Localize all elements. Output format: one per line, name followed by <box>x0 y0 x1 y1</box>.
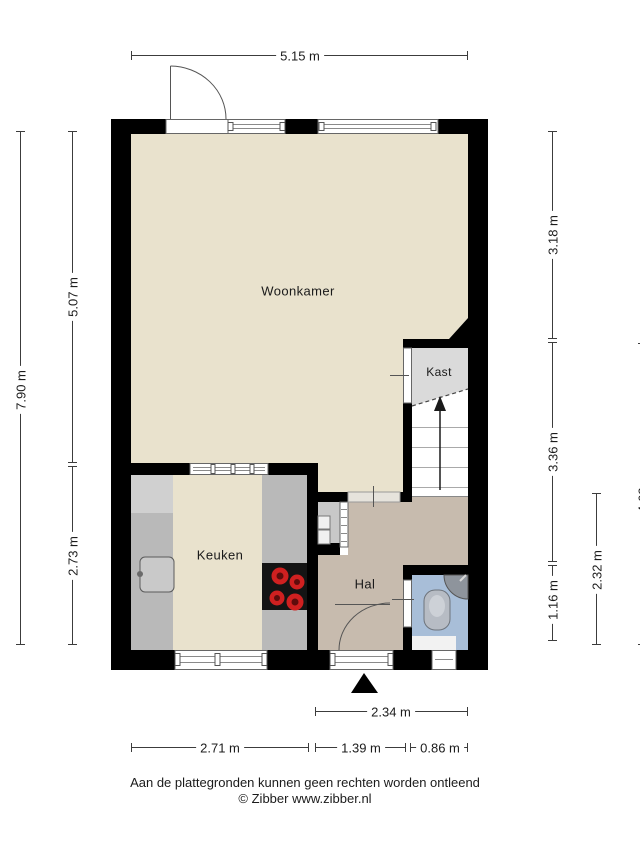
dim-label-right-upper: 3.18 m <box>546 211 561 259</box>
dim-label-right-hall: 2.32 m <box>590 546 605 594</box>
wall-toilet-left <box>403 627 412 650</box>
meter-closet-vent-window <box>340 502 348 547</box>
wall-stairwell-left <box>403 403 412 497</box>
footer-credit: © Zibber www.zibber.nl <box>238 791 371 806</box>
kitchen-counter-right <box>262 475 307 650</box>
top-window-left <box>228 120 285 134</box>
interior-window-kitchen <box>190 464 268 475</box>
hal-floor <box>403 497 468 565</box>
floorplan-page: Woonkamer Kast Keuken Hal 5.15 m 7.90 m … <box>0 0 640 853</box>
dim-label-right-middle: 3.36 m <box>546 428 561 476</box>
wall-meter-closet-top <box>318 492 348 502</box>
dim-label-top-width: 5.15 m <box>276 49 324 64</box>
toilet-recess <box>412 636 456 650</box>
dim-label-bottom-kitchen: 2.71 m <box>196 741 244 756</box>
meter-closet-fixtures <box>318 516 330 544</box>
footer-disclaimer: Aan de plattegronden kunnen geen rechten… <box>130 775 480 790</box>
wall-kitchen-top <box>131 463 190 475</box>
entrance-arrow-icon <box>351 673 378 693</box>
dim-label-left-lower: 2.73 m <box>66 532 81 580</box>
kitchen-window <box>175 651 267 670</box>
dim-label-right-lower: 1.16 m <box>546 576 561 624</box>
wall-kitchen-right <box>307 463 318 650</box>
room-label-kast: Kast <box>426 365 452 379</box>
top-window-right <box>318 120 438 134</box>
wall-toilet-top <box>403 565 468 575</box>
sink-icon <box>140 557 174 592</box>
wall-toilet-left <box>403 565 412 580</box>
floorplan-drawing <box>0 0 640 853</box>
dim-label-left-total: 7.90 m <box>14 366 29 414</box>
toilet-door-opening <box>404 580 412 627</box>
dim-label-left-upper: 5.07 m <box>66 273 81 321</box>
kitchen-counter-left-top <box>131 475 173 513</box>
top-door-arc <box>171 66 227 119</box>
room-label-hal: Hal <box>355 577 376 592</box>
room-label-woonkamer: Woonkamer <box>261 284 334 299</box>
dim-label-bottom-hall-width: 2.34 m <box>367 705 415 720</box>
dim-label-bottom-toilet: 0.86 m <box>416 741 464 756</box>
wall-left <box>111 119 131 670</box>
wall-right <box>468 119 488 670</box>
wall-meter-closet-bottom <box>307 543 340 555</box>
sink-faucet-icon <box>137 571 143 577</box>
dim-label-bottom-door: 1.39 m <box>337 741 385 756</box>
appliance-icon <box>318 530 330 544</box>
front-door-opening <box>330 651 393 670</box>
wall-bottom <box>111 650 488 670</box>
appliance-icon <box>318 516 330 529</box>
room-label-keuken: Keuken <box>197 548 244 563</box>
top-door-opening <box>166 120 228 134</box>
dim-label-right-lower-total: 4.62 m <box>636 469 640 517</box>
hal-floor <box>318 555 348 650</box>
